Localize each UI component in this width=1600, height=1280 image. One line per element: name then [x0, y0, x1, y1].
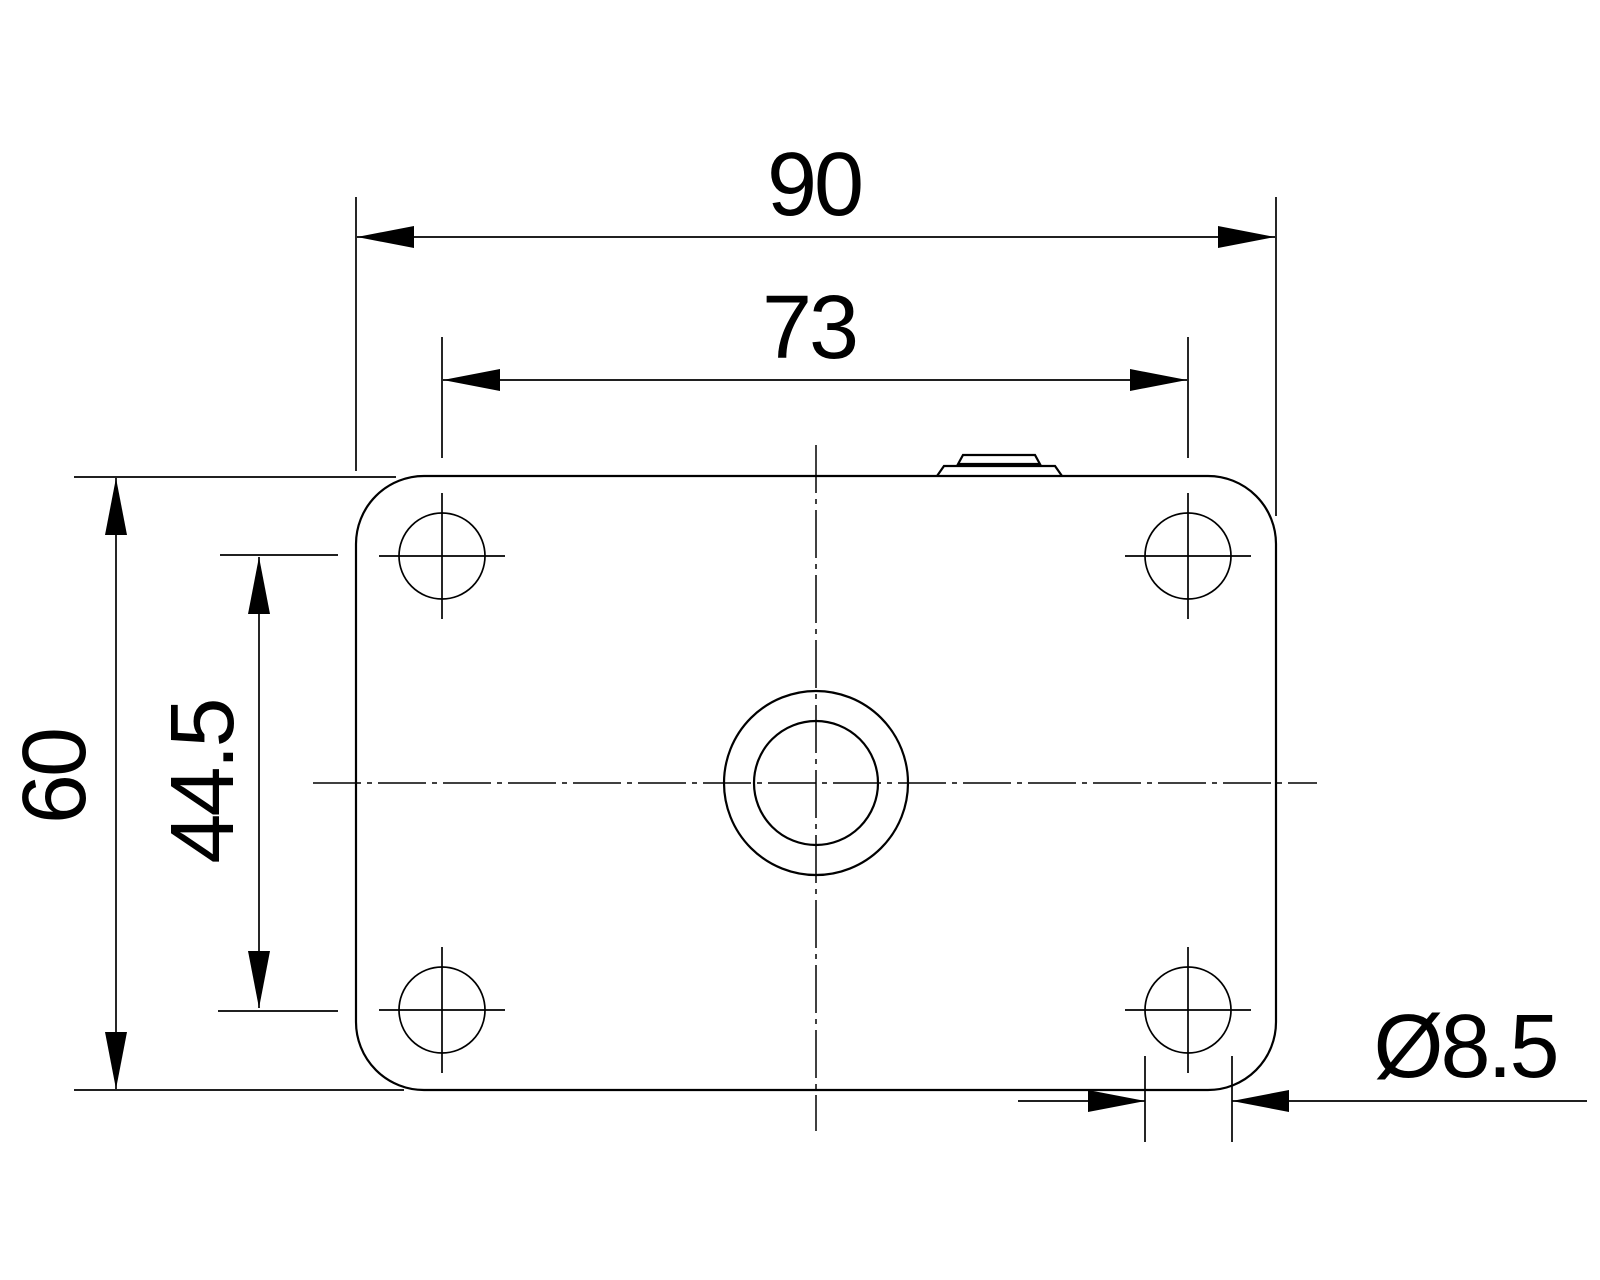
dimension-hole-diameter: Ø8.5	[1018, 997, 1587, 1142]
dimension-hole-spacing-horizontal: 73	[442, 278, 1188, 458]
centerlines	[313, 445, 1317, 1131]
dim-label-hole-spacing-vertical: 44.5	[153, 700, 253, 863]
arrowhead-top	[105, 478, 127, 535]
arrowhead-left	[357, 226, 414, 248]
mounting-hole-top-right	[1125, 493, 1251, 619]
mounting-hole-bottom-right	[1125, 947, 1251, 1073]
mounting-hole-top-left	[379, 493, 505, 619]
dim-label-overall-width: 90	[767, 135, 861, 235]
arrowhead-bottom	[248, 951, 270, 1008]
mounting-hole-bottom-left	[379, 947, 505, 1073]
arrowhead-right	[1130, 369, 1187, 391]
arrowhead-bottom	[105, 1032, 127, 1089]
arrowhead-left	[443, 369, 500, 391]
dim-label-overall-height: 60	[5, 730, 105, 824]
arrowhead-right	[1232, 1090, 1289, 1112]
dim-label-hole-spacing-horizontal: 73	[762, 278, 856, 378]
drawing-canvas: 90 73 60 44.5 Ø8.5	[0, 0, 1600, 1280]
top-boss-outer	[937, 466, 1062, 476]
arrowhead-top	[248, 557, 270, 614]
arrowhead-left	[1088, 1090, 1145, 1112]
dimension-hole-spacing-vertical: 44.5	[153, 555, 338, 1011]
dim-label-hole-diameter: Ø8.5	[1373, 997, 1556, 1097]
technical-drawing: 90 73 60 44.5 Ø8.5	[0, 0, 1600, 1280]
arrowhead-right	[1218, 226, 1275, 248]
